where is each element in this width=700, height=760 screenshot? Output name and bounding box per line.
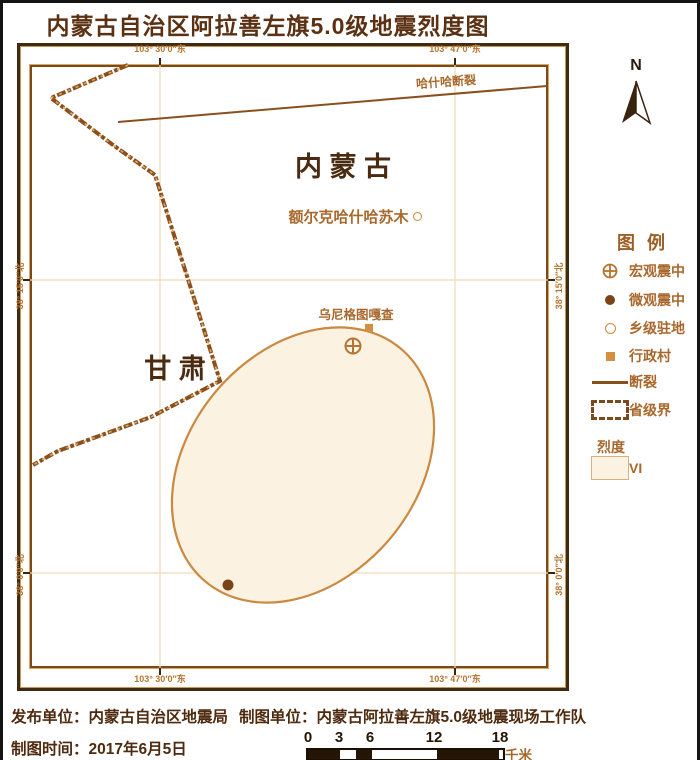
legend-item-micro-epicenter: 微观震中 [591,289,700,311]
province-boundary-legend-icon [591,400,629,420]
province-boundary-texture [33,65,220,465]
scale-tick-6: 6 [358,729,382,746]
coord-top-right: 103° 47′0″东 [405,44,505,55]
coord-left-lower: 38° 0′0″北 [14,540,26,610]
intensity-vi-swatch [591,456,629,480]
scale-tick-3: 3 [327,729,351,746]
legend-label: 宏观震中 [629,261,685,281]
village-label: 乌尼格图嘎查 [296,304,416,323]
coord-bottom-right: 103° 47′0″东 [405,674,505,685]
north-arrow-icon [622,81,650,123]
legend-title: 图例 [591,229,691,255]
coord-right-lower: 38° 0′0″北 [553,540,565,610]
intensity-heading: 烈度 [597,437,625,457]
coord-left-upper: 38° 15′0″北 [14,251,26,321]
scale-bar-segment [356,750,372,759]
village-icon [365,324,373,332]
intensity-vi-zone [118,275,488,654]
legend-label: 乡级驻地 [629,318,685,338]
legend-item-fault: 断裂 [591,371,700,393]
mapper-text: 制图单位：内蒙古阿拉善左旗5.0级地震现场工作队 [239,705,586,727]
legend-label: 微观震中 [629,290,685,310]
legend-item-village: 行政村 [591,345,700,367]
region-label-inner-mongolia: 内 蒙 古 [243,145,443,184]
macro-epicenter-icon [346,339,361,354]
legend-label: 行政村 [629,346,671,366]
coord-right-upper: 38° 15′0″北 [553,251,565,321]
village-legend-icon [591,352,629,361]
fault-legend-icon [591,381,629,384]
micro-epicenter-icon [223,580,234,591]
legend-label: 断裂 [629,372,657,392]
legend-item-province-boundary: 省级界 [591,398,700,422]
scale-unit-label: 千米 [505,744,532,760]
scale-bar [306,748,505,760]
intensity-vi-label: VI [629,460,642,476]
township-seat-icon [413,212,422,221]
township-label-group: 额尔克哈什哈苏木 [265,206,445,227]
scale-tick-12: 12 [422,729,446,746]
scale-tick-0: 0 [296,729,320,746]
fault-line [118,86,547,122]
coord-top-left: 103° 30′0″东 [110,44,210,55]
scale-bar-segment [308,750,340,759]
coord-bottom-left: 103° 30′0″东 [110,674,210,685]
north-label: N [625,57,647,75]
region-label-gansu: 甘 肃 [115,347,235,386]
macro-epicenter-legend-icon [591,262,629,280]
legend-item-township-seat: 乡级驻地 [591,317,700,339]
legend-item-intensity-vi: VI [591,455,700,481]
township-seat-legend-icon [591,323,629,334]
publisher-text: 发布单位：内蒙古自治区地震局 [11,705,228,727]
micro-epicenter-legend-icon [591,295,629,305]
seismic-intensity-map-page: 内蒙古自治区阿拉善左旗5.0级地震烈度图 [0,0,700,760]
legend-label: 省级界 [629,400,671,420]
scale-bar-segment [437,750,499,759]
map-date-text: 制图时间：2017年6月5日 [11,737,187,759]
legend-item-macro-epicenter: 宏观震中 [591,260,700,282]
province-boundary-line [33,65,220,465]
township-label: 额尔克哈什哈苏木 [288,206,408,227]
